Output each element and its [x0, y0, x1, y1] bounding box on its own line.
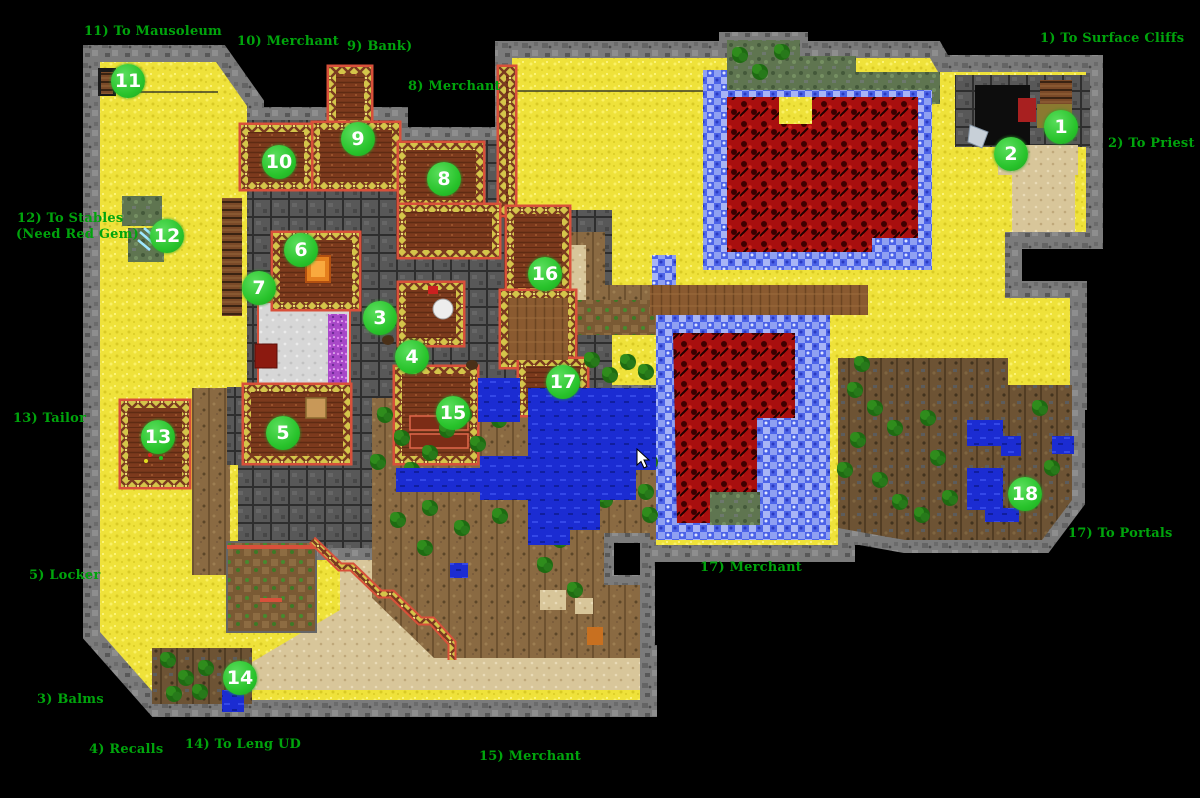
- tree: [642, 507, 658, 523]
- tree: [390, 512, 406, 528]
- tree: [732, 47, 748, 63]
- tree: [567, 582, 583, 598]
- map-marker-13[interactable]: 13: [141, 420, 175, 454]
- map-marker-5[interactable]: 5: [266, 416, 300, 450]
- tree: [638, 484, 654, 500]
- tree: [887, 420, 903, 436]
- tree: [492, 508, 508, 524]
- map-label: 5) Locker: [29, 568, 100, 583]
- tree: [394, 430, 410, 446]
- tree: [417, 540, 433, 556]
- map-marker-11[interactable]: 11: [111, 64, 145, 98]
- tree: [470, 436, 486, 452]
- tree: [584, 352, 600, 368]
- map-label: 4) Recalls: [89, 742, 163, 757]
- map-marker-14[interactable]: 14: [223, 661, 257, 695]
- map-label: 13) Tailor: [13, 411, 86, 426]
- map-marker-7[interactable]: 7: [242, 271, 276, 305]
- map-label: (Need Red Gem): [16, 227, 139, 242]
- map-marker-8[interactable]: 8: [427, 162, 461, 196]
- map-terrain: [0, 0, 1200, 798]
- map-label: 15) Merchant: [479, 749, 581, 764]
- tree: [774, 44, 790, 60]
- tree: [620, 354, 636, 370]
- tree: [422, 445, 438, 461]
- tree: [847, 382, 863, 398]
- map-label: 1) To Surface Cliffs: [1040, 31, 1184, 46]
- map-label: 2) To Priest: [1108, 136, 1195, 151]
- tree: [454, 520, 470, 536]
- tree: [914, 507, 930, 523]
- map-label: 14) To Leng UD: [185, 737, 301, 752]
- tree: [930, 450, 946, 466]
- tree: [178, 670, 194, 686]
- tree: [192, 684, 208, 700]
- map-marker-10[interactable]: 10: [262, 145, 296, 179]
- map-label: 11) To Mausoleum: [84, 24, 222, 39]
- map-label: 17) Merchant: [700, 560, 802, 575]
- building: [398, 204, 500, 258]
- tree: [837, 462, 853, 478]
- map-marker-4[interactable]: 4: [395, 340, 429, 374]
- tree: [1044, 460, 1060, 476]
- tree: [850, 432, 866, 448]
- tree: [872, 472, 888, 488]
- map-label: 8) Merchant: [408, 79, 501, 94]
- tree: [160, 652, 176, 668]
- tree: [166, 686, 182, 702]
- map-marker-1[interactable]: 1: [1044, 110, 1078, 144]
- map-label: 17) To Portals: [1068, 526, 1173, 541]
- tree: [370, 454, 386, 470]
- map-label: 3) Balms: [37, 692, 104, 707]
- map-marker-3[interactable]: 3: [363, 301, 397, 335]
- map-label: 10) Merchant: [237, 34, 339, 49]
- map-marker-12[interactable]: 12: [150, 219, 184, 253]
- tree: [602, 367, 618, 383]
- tree: [422, 500, 438, 516]
- map-marker-6[interactable]: 6: [284, 233, 318, 267]
- map-marker-18[interactable]: 18: [1008, 477, 1042, 511]
- tree: [377, 407, 393, 423]
- mouse-cursor: [636, 448, 652, 470]
- map-marker-15[interactable]: 15: [436, 396, 470, 430]
- tree: [942, 490, 958, 506]
- tree: [752, 64, 768, 80]
- tree: [537, 557, 553, 573]
- tree: [854, 356, 870, 372]
- tree: [1032, 400, 1048, 416]
- tree: [867, 400, 883, 416]
- tree: [920, 410, 936, 426]
- tree: [638, 364, 654, 380]
- map-label: 12) To Stables: [17, 211, 123, 226]
- map-marker-2[interactable]: 2: [994, 137, 1028, 171]
- tree: [198, 660, 214, 676]
- map-marker-16[interactable]: 16: [528, 257, 562, 291]
- map-marker-9[interactable]: 9: [341, 122, 375, 156]
- map-canvas[interactable]: 1) To Surface Cliffs2) To Priest3) Balms…: [0, 0, 1200, 798]
- tree: [892, 494, 908, 510]
- map-marker-17[interactable]: 17: [546, 365, 580, 399]
- map-label: 9) Bank): [347, 39, 412, 54]
